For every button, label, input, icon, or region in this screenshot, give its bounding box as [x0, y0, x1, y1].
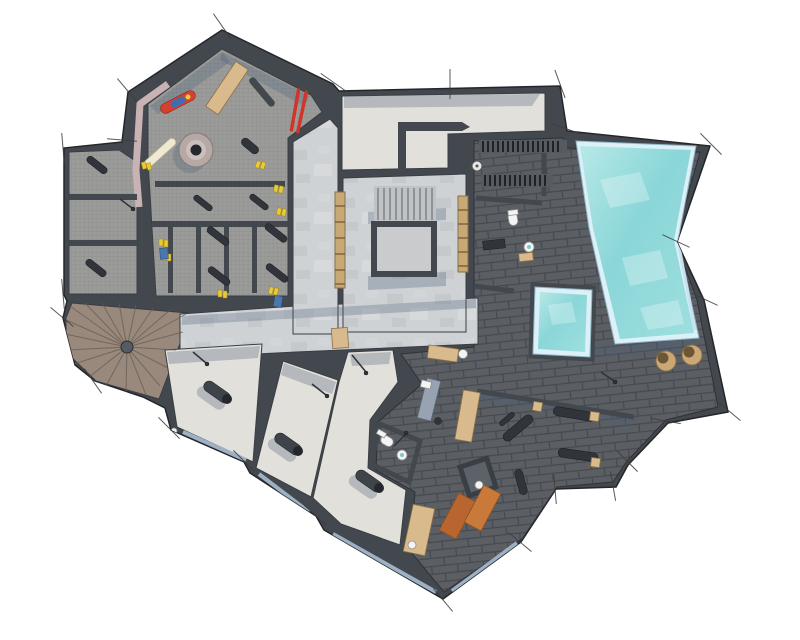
wood-shape	[589, 411, 599, 421]
circle	[658, 353, 669, 364]
layer-floors-furniture	[65, 49, 718, 592]
dark-shape	[613, 380, 617, 384]
yellow-shape	[218, 290, 222, 297]
yellow-shape	[276, 208, 281, 216]
wallp-shape	[252, 227, 257, 293]
white-shape	[475, 481, 483, 489]
circle	[476, 165, 479, 168]
hi-shape	[548, 302, 576, 325]
shelf	[519, 252, 534, 261]
circle	[374, 483, 384, 493]
wood-shape	[532, 401, 542, 411]
circle	[293, 446, 303, 456]
yellow-shape	[159, 239, 163, 246]
white-shape	[245, 474, 251, 480]
stair-flight	[374, 186, 436, 222]
dark-shape	[205, 362, 209, 366]
circle	[186, 95, 191, 100]
wallp-shape	[196, 227, 201, 293]
stool	[435, 418, 442, 425]
yellow-shape	[278, 186, 283, 194]
ski-bag	[160, 248, 169, 260]
white-shape	[408, 541, 416, 549]
threshold	[331, 327, 348, 348]
vertical-corridor-floor	[293, 119, 338, 334]
dark-shape	[404, 431, 408, 435]
cellar-partition	[69, 194, 137, 200]
white-shape	[459, 350, 468, 359]
dark-shape	[364, 371, 368, 375]
wall-ladder	[458, 196, 468, 272]
floor-plan-page	[0, 0, 800, 640]
shadow-shape	[344, 94, 540, 108]
yellow-shape	[164, 240, 168, 247]
circle	[684, 347, 695, 358]
wood-shape	[590, 457, 600, 467]
stair-void	[374, 224, 434, 274]
cellar-partition	[69, 240, 137, 246]
yellow-shape	[281, 209, 286, 217]
floorplan-svg	[0, 0, 800, 640]
dark-shape	[325, 394, 329, 398]
wallp-shape	[398, 131, 406, 170]
yellow-shape	[223, 291, 227, 298]
circle	[527, 245, 531, 249]
dark-shape	[131, 207, 135, 211]
white-shape	[508, 209, 519, 215]
tech-room-inner-wall	[398, 122, 470, 131]
stair-newel-post	[121, 341, 133, 353]
yellow-shape	[273, 185, 278, 193]
circle	[222, 394, 232, 404]
ski-bag	[273, 295, 283, 307]
locker-wall	[155, 181, 285, 187]
circle	[400, 453, 404, 457]
sauna-bench	[481, 174, 553, 187]
fire-pit-hole	[191, 145, 202, 156]
